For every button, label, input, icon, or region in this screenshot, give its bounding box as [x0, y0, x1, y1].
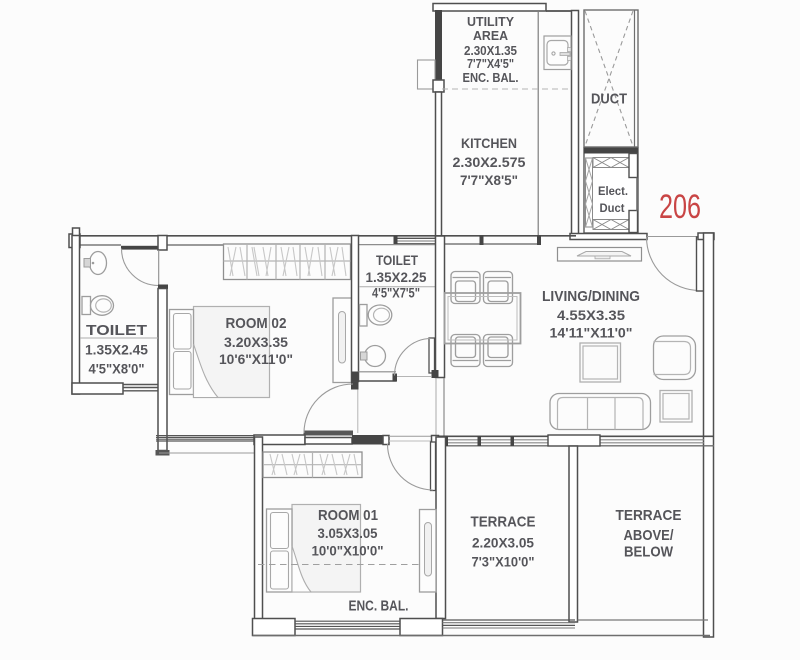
svg-text:ENC. BAL.: ENC. BAL.	[463, 71, 519, 85]
svg-text:10'0"X10'0": 10'0"X10'0"	[312, 543, 384, 559]
svg-text:4.55X3.35: 4.55X3.35	[557, 307, 625, 323]
svg-text:ABOVE/: ABOVE/	[624, 527, 675, 544]
svg-text:ROOM 01: ROOM 01	[318, 507, 378, 524]
svg-text:UTILITY: UTILITY	[467, 15, 515, 29]
svg-text:3.20X3.35: 3.20X3.35	[224, 334, 288, 350]
svg-text:4'5"X7'5": 4'5"X7'5"	[372, 286, 420, 301]
svg-text:14'11"X11'0": 14'11"X11'0"	[550, 325, 633, 341]
svg-text:2.30X2.575: 2.30X2.575	[453, 154, 526, 170]
svg-text:TERRACE: TERRACE	[471, 514, 536, 531]
svg-text:7'7"X8'5": 7'7"X8'5"	[460, 172, 518, 188]
svg-text:TERRACE: TERRACE	[616, 507, 682, 524]
svg-text:10'6"X11'0": 10'6"X11'0"	[219, 351, 293, 367]
svg-text:ENC. BAL.: ENC. BAL.	[349, 599, 409, 615]
svg-text:DUCT: DUCT	[591, 91, 627, 108]
svg-text:2.30X1.35: 2.30X1.35	[464, 44, 517, 58]
svg-text:AREA: AREA	[473, 29, 508, 43]
svg-text:7'3"X10'0": 7'3"X10'0"	[472, 554, 535, 570]
svg-text:KITCHEN: KITCHEN	[461, 135, 517, 151]
svg-text:Duct: Duct	[600, 203, 625, 215]
svg-text:4'5"X8'0": 4'5"X8'0"	[89, 361, 145, 377]
svg-text:3.05X3.05: 3.05X3.05	[318, 525, 378, 541]
svg-text:2.20X3.05: 2.20X3.05	[472, 535, 534, 551]
svg-text:TOILET: TOILET	[376, 253, 419, 268]
svg-text:LIVING/DINING: LIVING/DINING	[542, 288, 640, 305]
svg-text:TOILET: TOILET	[86, 322, 147, 339]
svg-text:1.35X2.25: 1.35X2.25	[366, 270, 427, 285]
svg-text:Elect.: Elect.	[598, 186, 628, 198]
svg-text:ROOM 02: ROOM 02	[226, 315, 287, 332]
svg-text:206: 206	[659, 188, 701, 226]
svg-text:1.35X2.45: 1.35X2.45	[85, 342, 148, 358]
svg-text:BELOW: BELOW	[624, 544, 674, 561]
svg-text:7'7"X4'5": 7'7"X4'5"	[467, 57, 514, 71]
